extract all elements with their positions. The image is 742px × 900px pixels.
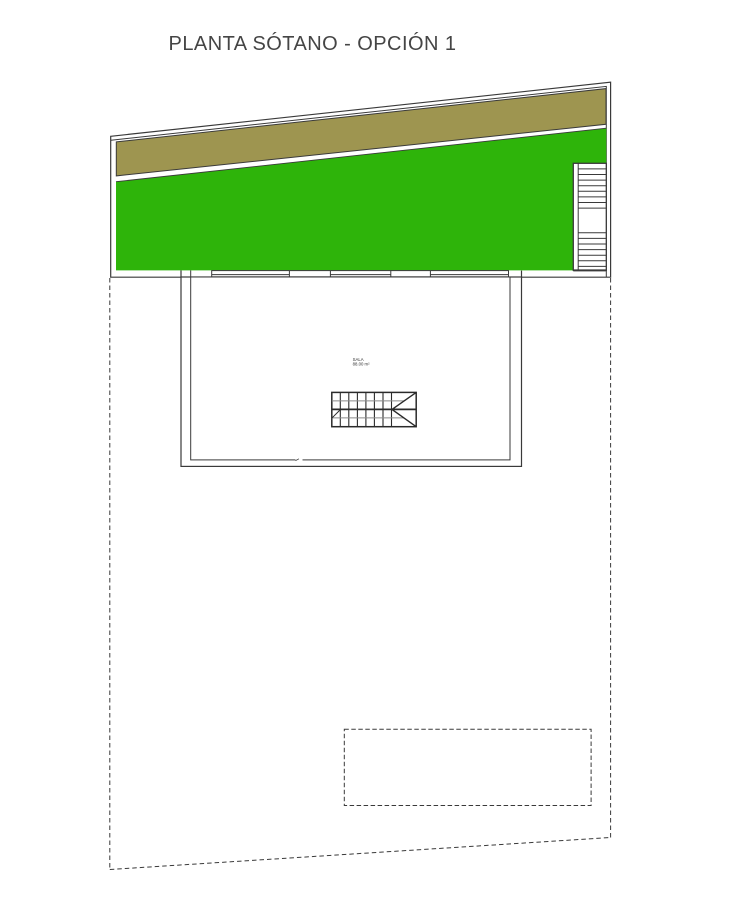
svg-text:88.00 m²: 88.00 m² — [353, 362, 371, 367]
